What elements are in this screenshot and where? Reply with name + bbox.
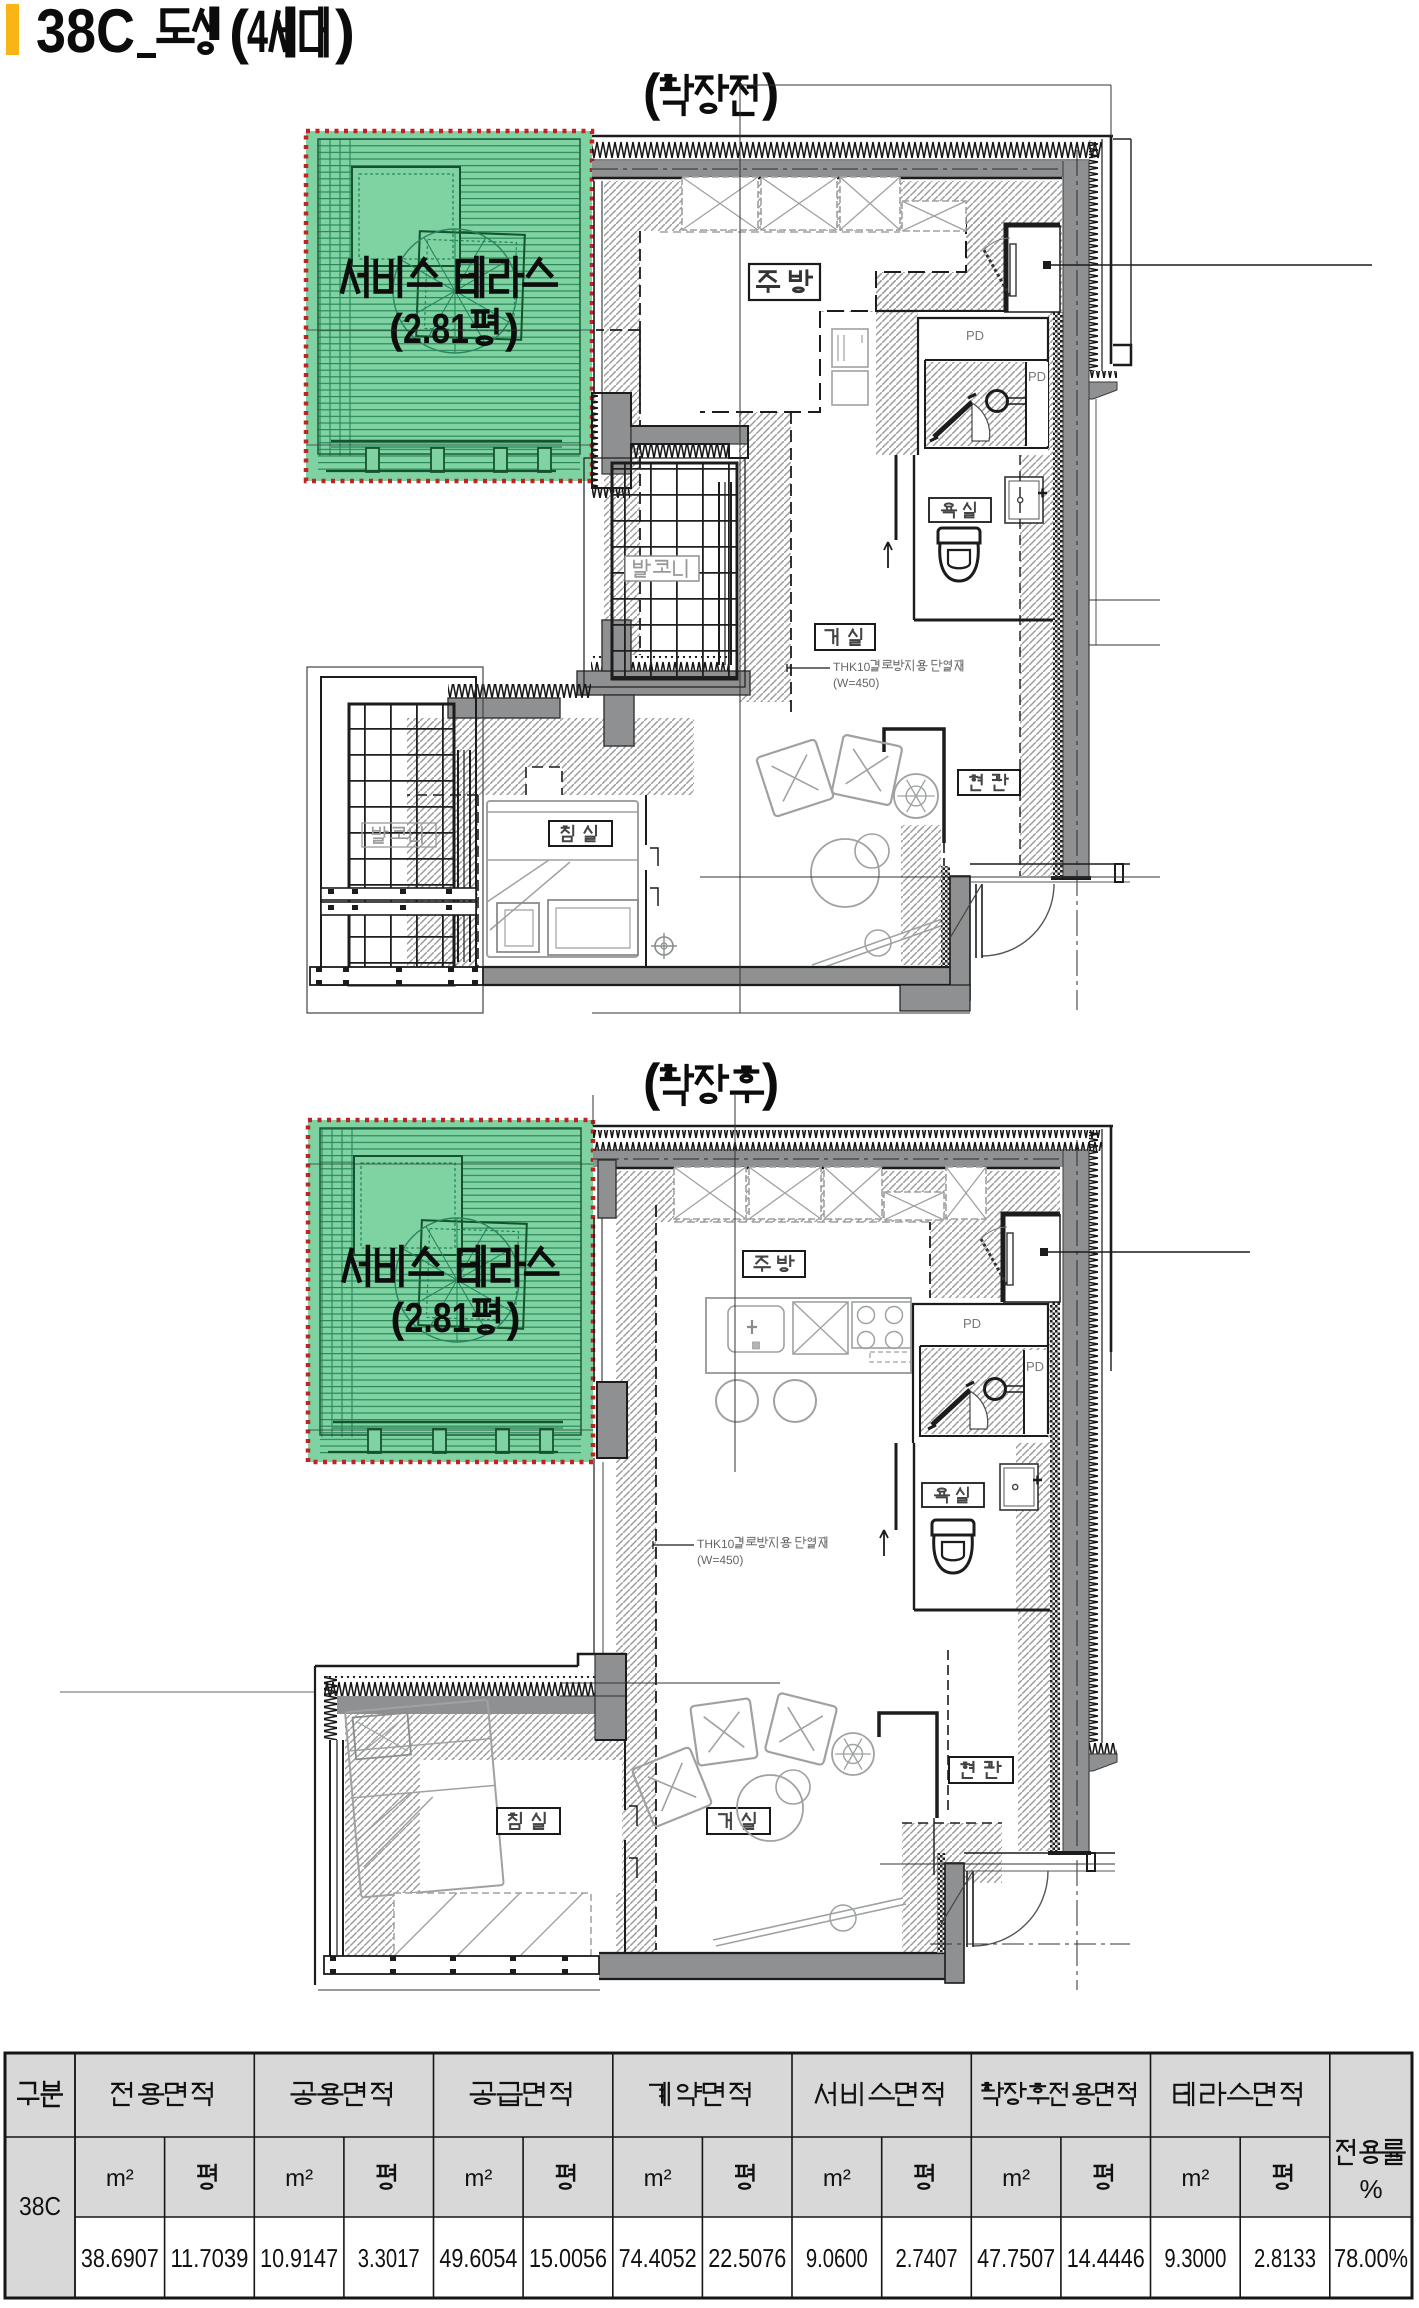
svg-text:47.7507: 47.7507	[977, 2243, 1055, 2273]
svg-text:THK10: THK10	[697, 1537, 735, 1551]
svg-text:(: (	[391, 1294, 405, 1341]
svg-text:10.9147: 10.9147	[260, 2243, 338, 2273]
svg-text:(W=450): (W=450)	[697, 1553, 743, 1567]
svg-text:49.6054: 49.6054	[439, 2243, 517, 2273]
svg-text:(: (	[229, 0, 249, 65]
svg-text:m²: m²	[823, 2165, 851, 2192]
svg-text:(W=450): (W=450)	[833, 676, 879, 690]
svg-text:THK10: THK10	[833, 660, 871, 674]
svg-text:m²: m²	[106, 2165, 134, 2192]
svg-text:22.5076: 22.5076	[708, 2243, 786, 2273]
svg-text:38C: 38C	[19, 2191, 61, 2221]
svg-text:74.4052: 74.4052	[619, 2243, 697, 2273]
svg-text:): )	[507, 1294, 521, 1341]
svg-text:2.81: 2.81	[403, 305, 469, 352]
svg-text:): )	[762, 1054, 779, 1112]
svg-text:11.7039: 11.7039	[170, 2243, 248, 2273]
svg-text:4: 4	[247, 0, 268, 65]
svg-text:%: %	[1359, 2174, 1382, 2204]
svg-text:9.0600: 9.0600	[806, 2243, 868, 2273]
svg-text:2.8133: 2.8133	[1254, 2243, 1316, 2273]
svg-text:9.3000: 9.3000	[1164, 2243, 1226, 2273]
svg-text:(: (	[643, 1054, 661, 1112]
svg-text:m²: m²	[285, 2165, 313, 2192]
svg-text:2.81: 2.81	[405, 1294, 471, 1341]
svg-text:▩: ▩	[751, 1340, 760, 1351]
svg-text:38.6907: 38.6907	[81, 2243, 159, 2273]
svg-text:m²: m²	[1002, 2165, 1030, 2192]
svg-text:(: (	[643, 64, 661, 122]
svg-text:38C: 38C	[36, 0, 135, 66]
svg-text:15.0056: 15.0056	[529, 2243, 607, 2273]
svg-text:): )	[335, 0, 355, 65]
svg-text:PD: PD	[966, 328, 984, 343]
svg-text:): )	[762, 64, 779, 122]
svg-text:78.00%: 78.00%	[1334, 2243, 1408, 2273]
svg-text:(: (	[389, 305, 403, 352]
svg-text:2.7407: 2.7407	[895, 2243, 957, 2273]
svg-text:PD: PD	[963, 1316, 981, 1331]
svg-text:3.3017: 3.3017	[358, 2243, 420, 2273]
svg-text:): )	[505, 305, 519, 352]
svg-text:PD: PD	[1026, 1359, 1044, 1374]
svg-text:m²: m²	[644, 2165, 672, 2192]
svg-text:m²: m²	[1181, 2165, 1209, 2192]
svg-text:PD: PD	[1028, 369, 1046, 384]
svg-text:m²: m²	[464, 2165, 492, 2192]
svg-text:14.4446: 14.4446	[1067, 2243, 1145, 2273]
